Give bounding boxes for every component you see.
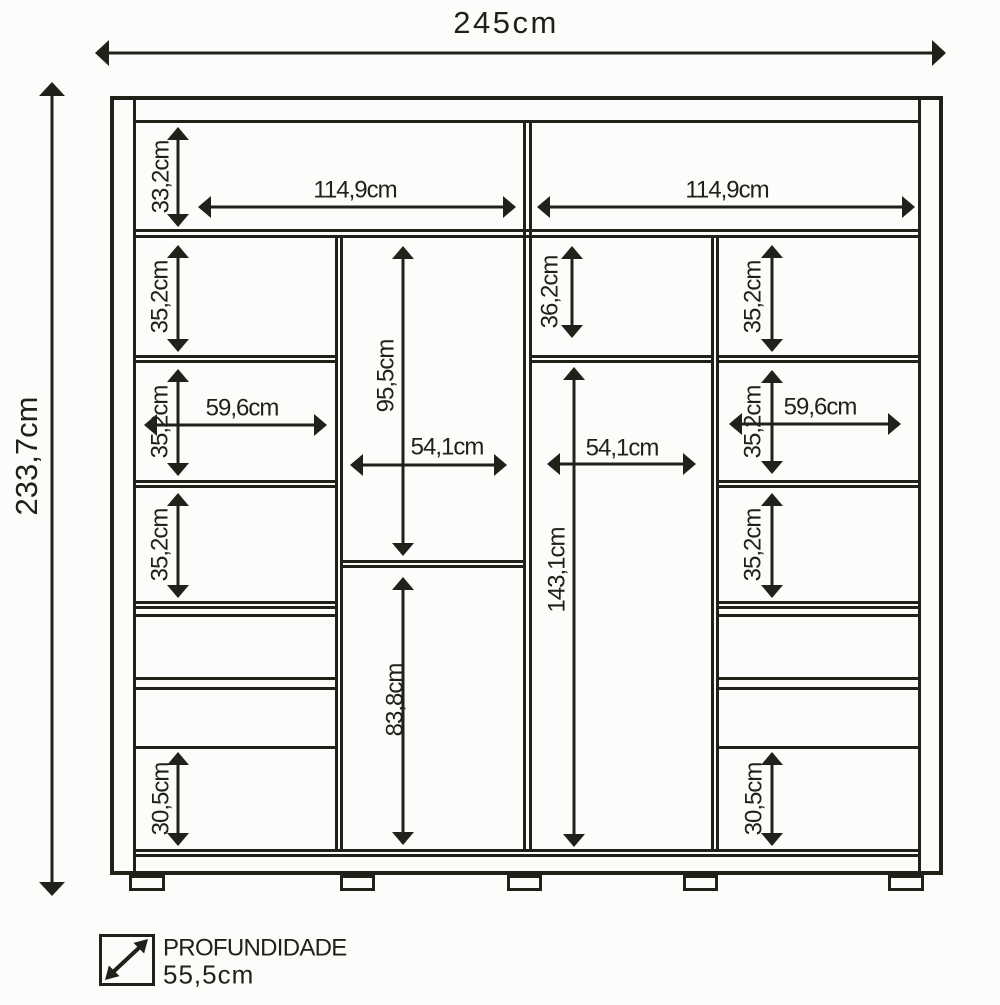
svg-text:59,6cm: 59,6cm [206, 395, 279, 422]
svg-text:114,9cm: 114,9cm [685, 177, 768, 204]
svg-text:233,7cm: 233,7cm [9, 397, 44, 516]
svg-text:55,5cm: 55,5cm [163, 959, 254, 989]
svg-text:30,5cm: 30,5cm [741, 763, 768, 836]
svg-text:36,2cm: 36,2cm [537, 256, 564, 329]
svg-text:35,2cm: 35,2cm [147, 261, 174, 334]
svg-text:35,2cm: 35,2cm [147, 509, 174, 582]
svg-text:35,2cm: 35,2cm [740, 261, 767, 334]
svg-text:143,1cm: 143,1cm [544, 527, 571, 612]
svg-text:33,2cm: 33,2cm [148, 141, 175, 214]
svg-text:30,5cm: 30,5cm [148, 763, 175, 836]
svg-text:PROFUNDIDADE: PROFUNDIDADE [163, 935, 347, 962]
svg-text:54,1cm: 54,1cm [411, 434, 484, 461]
svg-text:54,1cm: 54,1cm [586, 435, 659, 462]
svg-text:59,6cm: 59,6cm [784, 394, 857, 421]
svg-text:35,2cm: 35,2cm [740, 509, 767, 582]
svg-text:35,2cm: 35,2cm [740, 386, 767, 459]
svg-text:95,5cm: 95,5cm [373, 340, 400, 413]
svg-text:83,8cm: 83,8cm [382, 664, 409, 737]
svg-text:245cm: 245cm [453, 5, 559, 40]
svg-text:114,9cm: 114,9cm [313, 177, 396, 204]
